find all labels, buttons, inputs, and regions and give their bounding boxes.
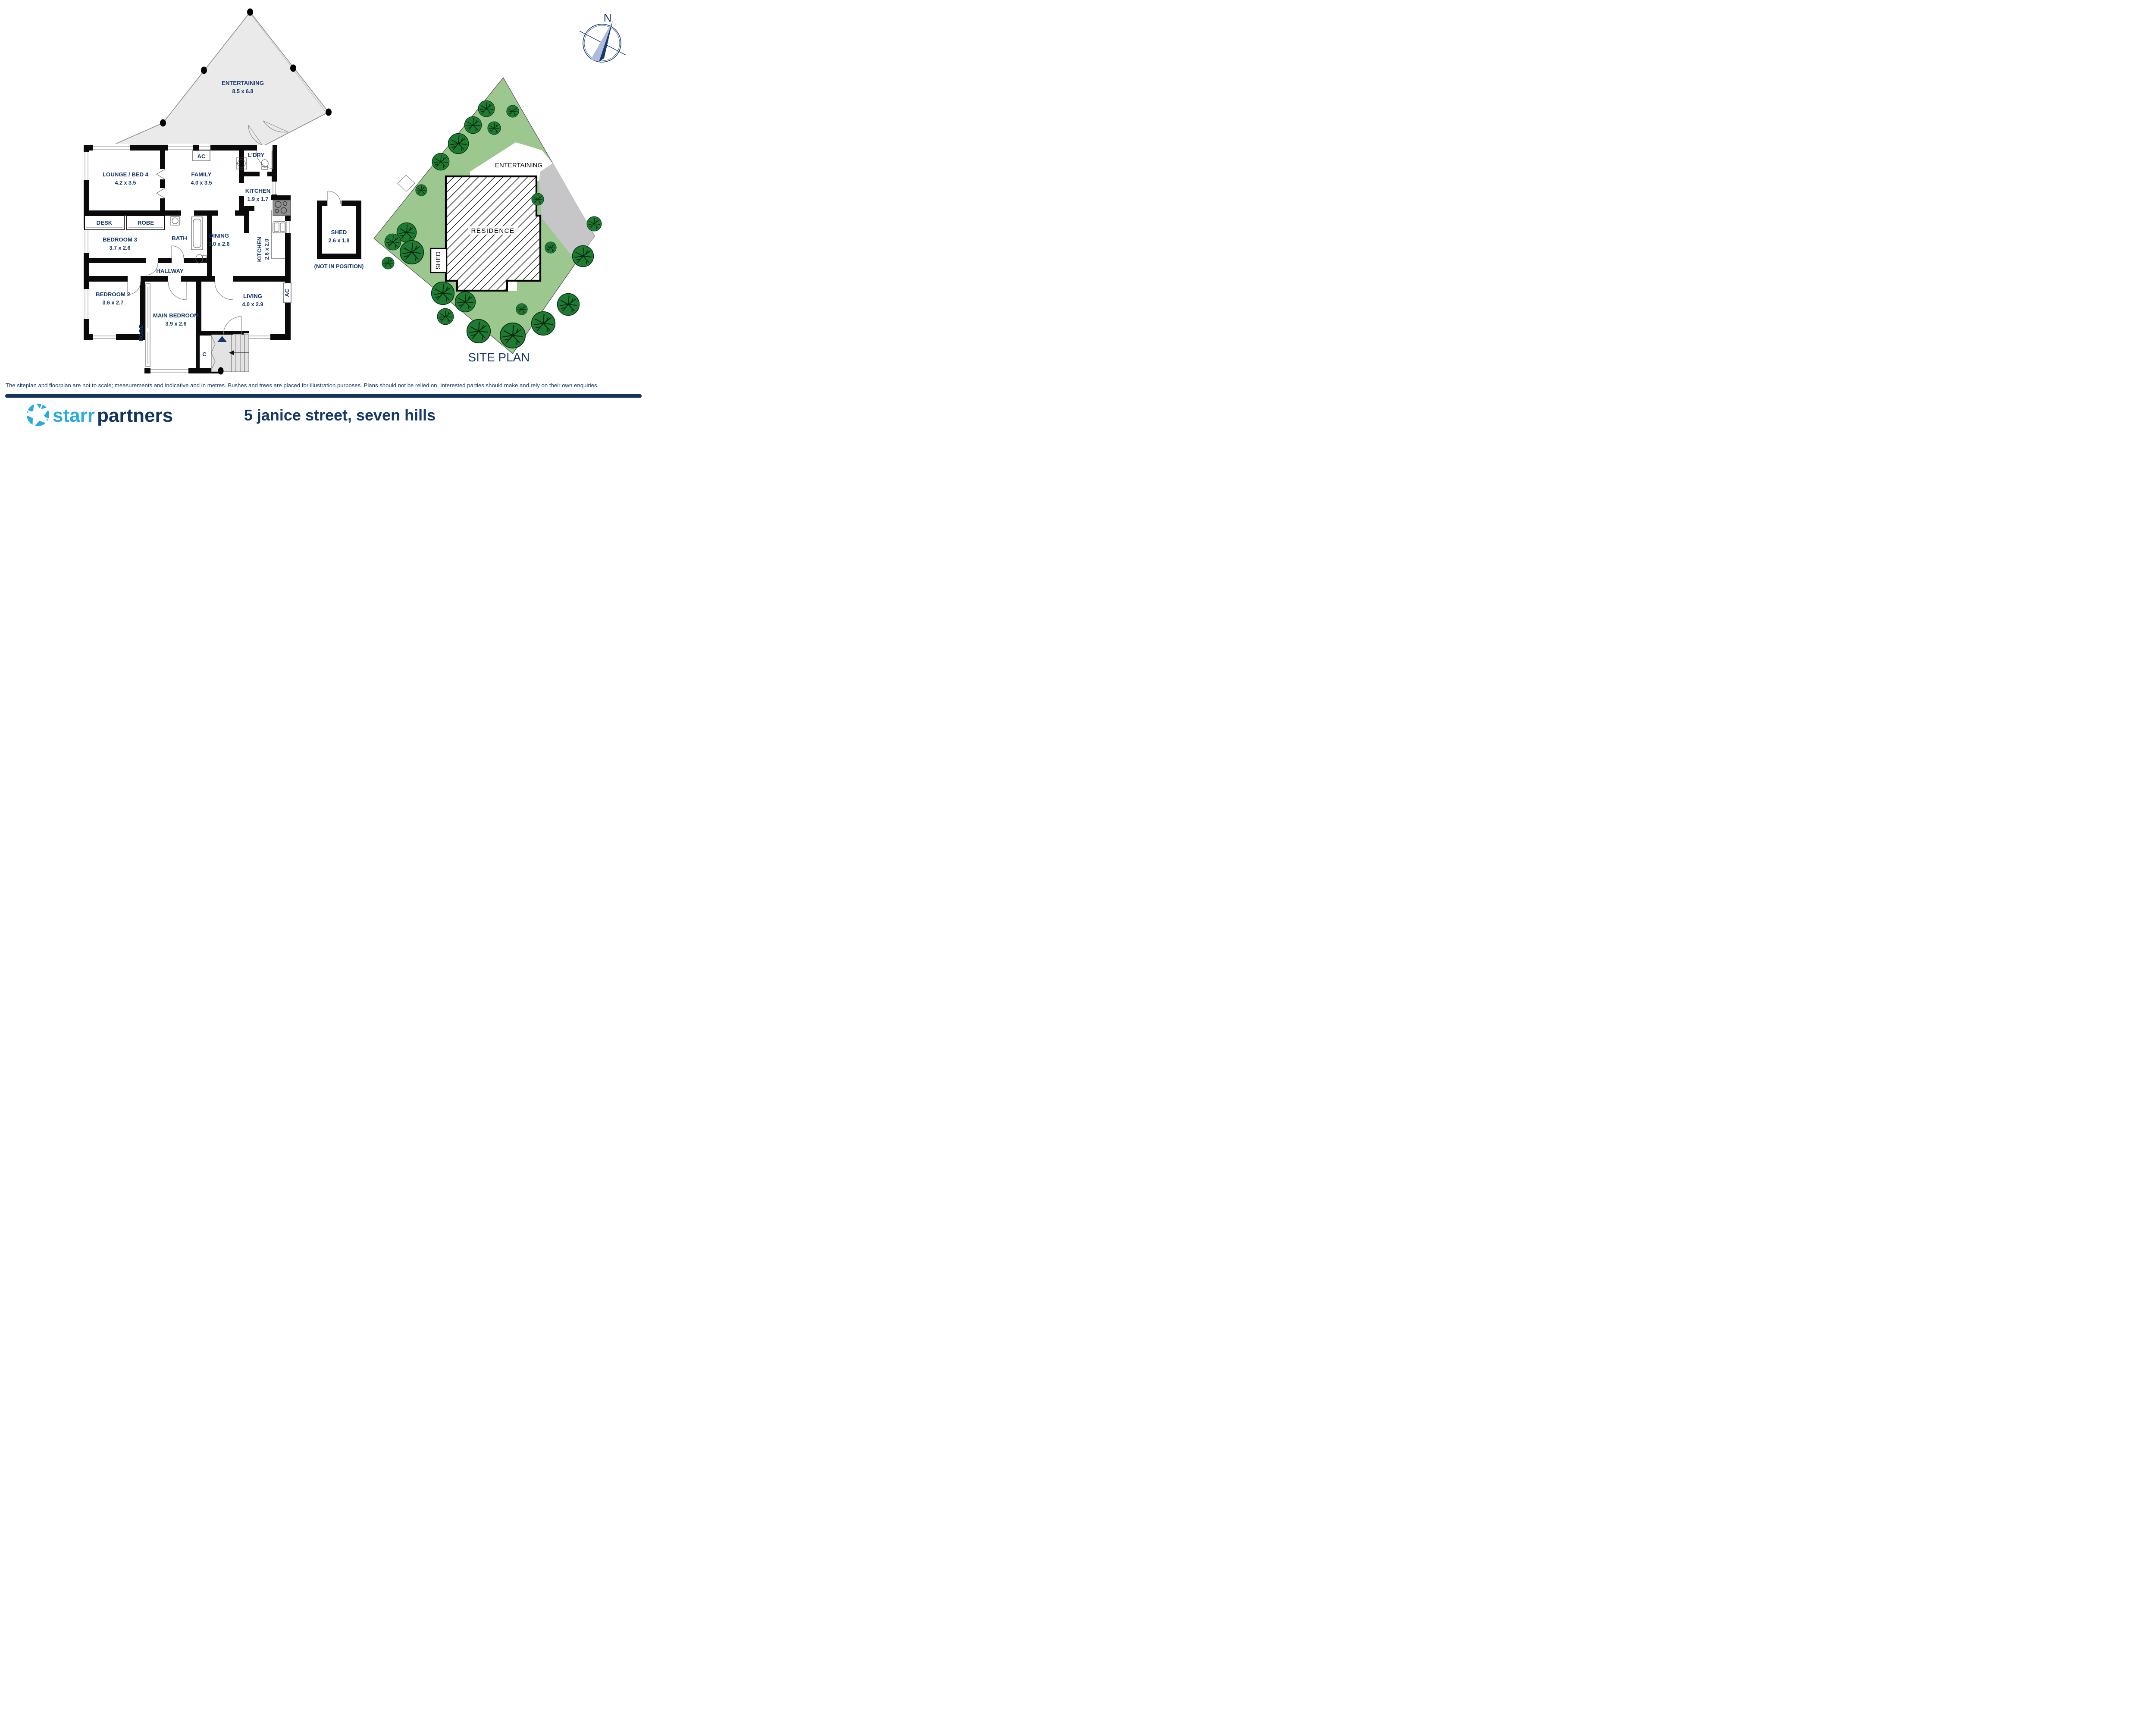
laundry-label: L'DRY	[248, 152, 265, 158]
star-icon	[21, 397, 54, 430]
plan-canvas: RESIDENCE SHED ENTERTAINING SITE PLAN N	[0, 0, 647, 431]
brand-first: starr	[53, 405, 95, 426]
ac-unit-top: AC	[193, 151, 210, 161]
lounge-label: LOUNGE / BED 4	[103, 171, 149, 178]
closet-label: C	[202, 351, 207, 358]
robe-label: ROBE	[138, 220, 154, 226]
svg-text:4.2 x 3.5: 4.2 x 3.5	[115, 180, 136, 186]
svg-text:1.9 x 1.7: 1.9 x 1.7	[247, 196, 268, 202]
desk-label: DESK	[97, 220, 113, 226]
entry-porch	[211, 335, 249, 375]
closet-robe: ROBE	[127, 216, 165, 230]
ac-top-label: AC	[197, 153, 206, 160]
bedroom2-label: BEDROOM 2	[96, 291, 130, 298]
shed-note: (NOT IN POSITION)	[314, 263, 364, 270]
footer: The siteplan and floorplan are not to sc…	[5, 382, 642, 430]
site-porch-step	[508, 282, 517, 291]
address-text: 5 janice street, seven hills	[244, 406, 436, 424]
brand-second: partners	[97, 405, 173, 426]
kitchen2-label: KITCHEN	[256, 237, 263, 262]
compass-north-label: N	[604, 11, 612, 24]
dining-label: DINING	[209, 232, 229, 239]
hallway-label: HALLWAY	[156, 268, 183, 274]
site-residence-label: RESIDENCE	[471, 227, 514, 235]
deck-entertaining: ENTERTAINING 8.5 x 6.8	[104, 9, 332, 149]
divider-bar	[5, 394, 642, 398]
site-court-patch	[398, 175, 415, 191]
site-shed-label: SHED	[435, 251, 442, 270]
disclaimer-text: The siteplan and floorplan are not to sc…	[6, 382, 599, 389]
floorplan-page: RESIDENCE SHED ENTERTAINING SITE PLAN N	[0, 0, 647, 431]
shed-dims: 2.6 x 1.8	[328, 238, 349, 244]
svg-text:4.0 x 3.5: 4.0 x 3.5	[191, 180, 212, 186]
bath-label: BATH	[172, 235, 187, 241]
site-residence: RESIDENCE	[446, 176, 540, 291]
living-label: LIVING	[243, 293, 262, 299]
svg-text:4.0 x 2.9: 4.0 x 2.9	[242, 301, 263, 307]
site-shed: SHED	[431, 248, 447, 273]
kitchen-label: KITCHEN	[245, 188, 271, 194]
compass: N	[580, 11, 626, 62]
ac-right-label: AC	[284, 289, 290, 297]
robe2-label: ROBE	[138, 325, 144, 341]
site-plan: RESIDENCE SHED ENTERTAINING SITE PLAN	[374, 78, 602, 364]
site-plan-title: SITE PLAN	[468, 351, 530, 364]
svg-text:3.9 x 2.6: 3.9 x 2.6	[165, 321, 186, 327]
floorplan-shed: SHED 2.6 x 1.8 (NOT IN POSITION)	[314, 191, 364, 270]
svg-text:3.7 x 2.6: 3.7 x 2.6	[109, 245, 130, 251]
deck-dims: 8.5 x 6.8	[232, 88, 253, 94]
shed-label: SHED	[331, 229, 347, 235]
deck-label: ENTERTAINING	[222, 80, 264, 86]
svg-text:3.6 x 2.7: 3.6 x 2.7	[102, 300, 123, 306]
floor-plan: ENTERTAINING 8.5 x 6.8	[82, 9, 364, 375]
site-entertaining-label: ENTERTAINING	[495, 162, 542, 169]
closet-desk: DESK	[85, 216, 124, 230]
bedroom3-label: BEDROOM 3	[103, 236, 137, 243]
starr-partners-logo: starr partners	[21, 397, 173, 430]
svg-text:3.0 x 2.6: 3.0 x 2.6	[208, 241, 229, 247]
ac-unit-right: AC	[284, 283, 291, 303]
svg-text:2.6 x 2.0: 2.6 x 2.0	[264, 238, 270, 260]
main-bedroom-label: MAIN BEDROOM	[153, 312, 199, 319]
porch-post-icon	[218, 367, 224, 375]
family-label: FAMILY	[191, 171, 211, 178]
